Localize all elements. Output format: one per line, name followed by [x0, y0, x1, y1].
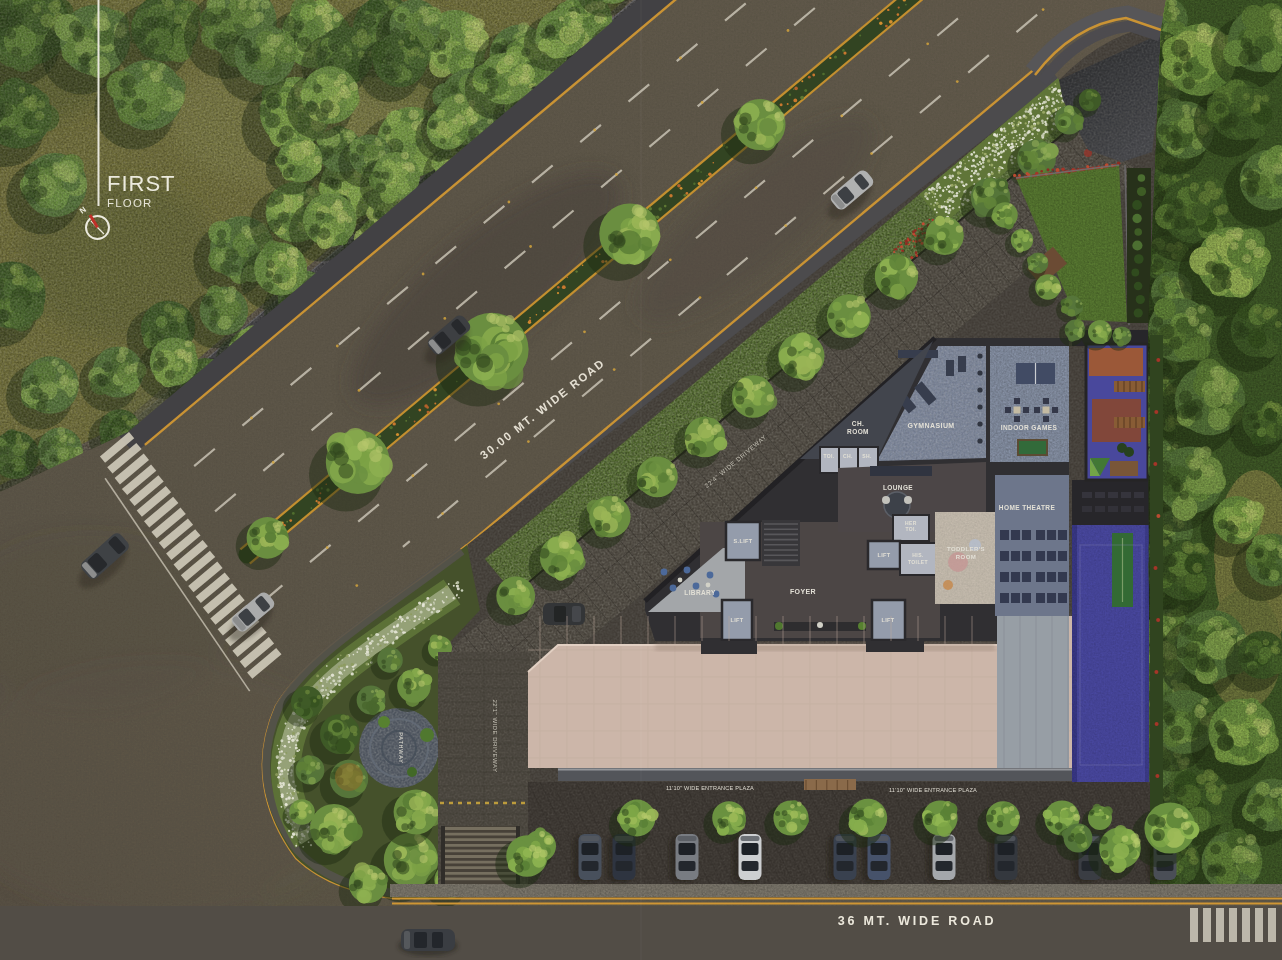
svg-text:11'10" WIDE ENTRANCE PLAZA: 11'10" WIDE ENTRANCE PLAZA — [889, 787, 977, 793]
svg-text:FIRST: FIRST — [107, 171, 176, 196]
svg-text:FLOOR: FLOOR — [107, 197, 153, 209]
svg-text:36 MT. WIDE ROAD: 36 MT. WIDE ROAD — [838, 914, 997, 928]
svg-text:11'10" WIDE ENTRANCE PLAZA: 11'10" WIDE ENTRANCE PLAZA — [666, 785, 754, 791]
